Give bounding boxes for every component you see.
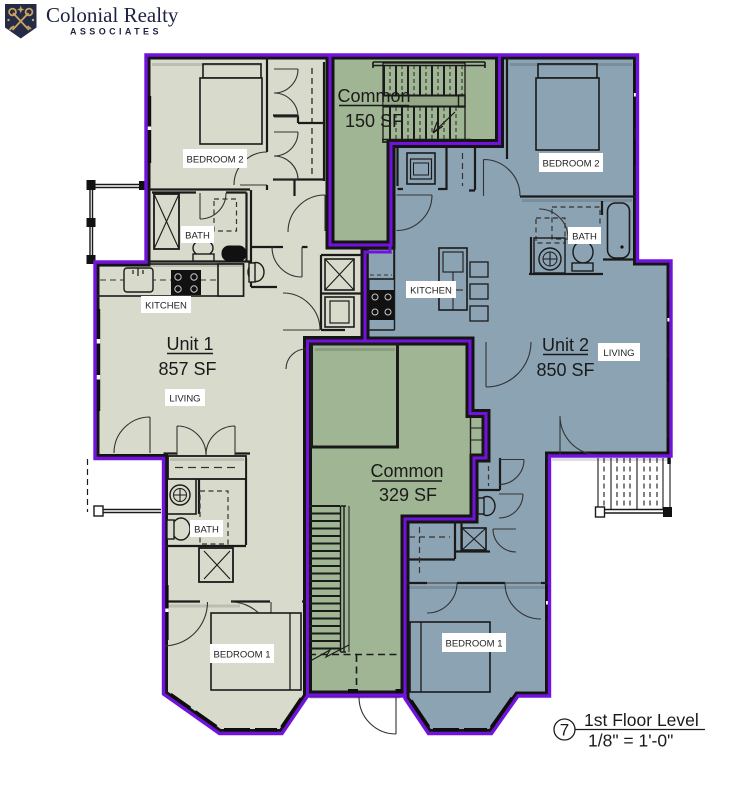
svg-text:1/8" = 1'-0": 1/8" = 1'-0" [588,731,673,751]
svg-text:BEDROOM 1: BEDROOM 1 [445,639,502,650]
svg-text:Unit 2: Unit 2 [542,335,589,355]
svg-text:329 SF: 329 SF [379,485,437,505]
svg-text:Common: Common [337,86,410,106]
svg-text:KITCHEN: KITCHEN [145,301,187,312]
svg-text:Colonial Realty: Colonial Realty [46,3,179,27]
svg-text:LIVING: LIVING [603,348,634,359]
svg-text:LIVING: LIVING [169,394,200,405]
svg-text:BATH: BATH [572,232,597,243]
svg-text:KITCHEN: KITCHEN [410,286,452,297]
svg-text:850 SF: 850 SF [536,360,594,380]
svg-text:BATH: BATH [185,231,210,242]
svg-text:Unit 1: Unit 1 [166,334,213,354]
svg-text:ASSOCIATES: ASSOCIATES [70,27,162,37]
svg-text:BEDROOM 1: BEDROOM 1 [213,650,270,661]
svg-text:857 SF: 857 SF [158,359,216,379]
svg-text:Common: Common [370,461,443,481]
svg-text:150 SF: 150 SF [345,111,403,131]
svg-text:1st Floor Level: 1st Floor Level [584,710,699,730]
svg-text:BEDROOM 2: BEDROOM 2 [542,159,599,170]
svg-text:BEDROOM 2: BEDROOM 2 [186,155,243,166]
svg-text:7: 7 [560,721,569,740]
svg-text:BATH: BATH [194,525,219,536]
